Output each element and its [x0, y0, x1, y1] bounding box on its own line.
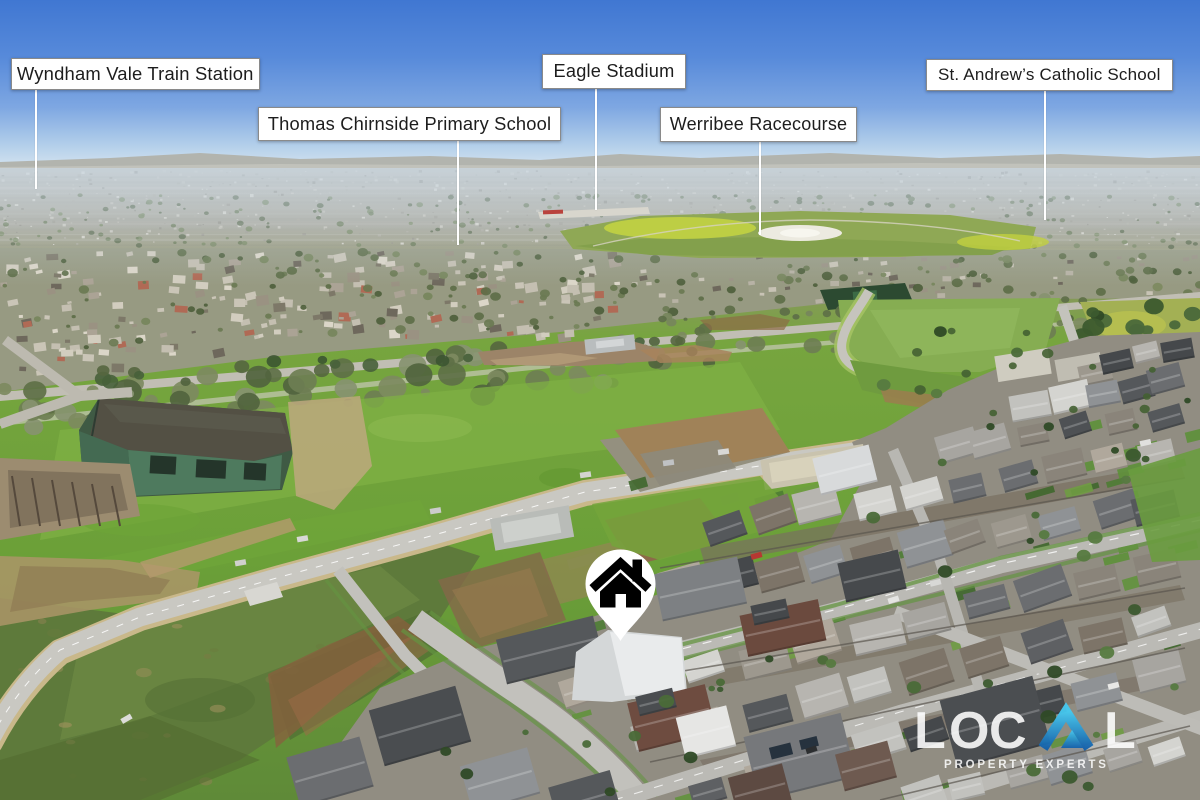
svg-text:L: L	[914, 702, 946, 760]
svg-text:C: C	[989, 702, 1027, 760]
svg-text:L: L	[1104, 702, 1136, 760]
svg-text:PROPERTY EXPERTS: PROPERTY EXPERTS	[944, 759, 1109, 771]
svg-text:O: O	[949, 702, 989, 760]
